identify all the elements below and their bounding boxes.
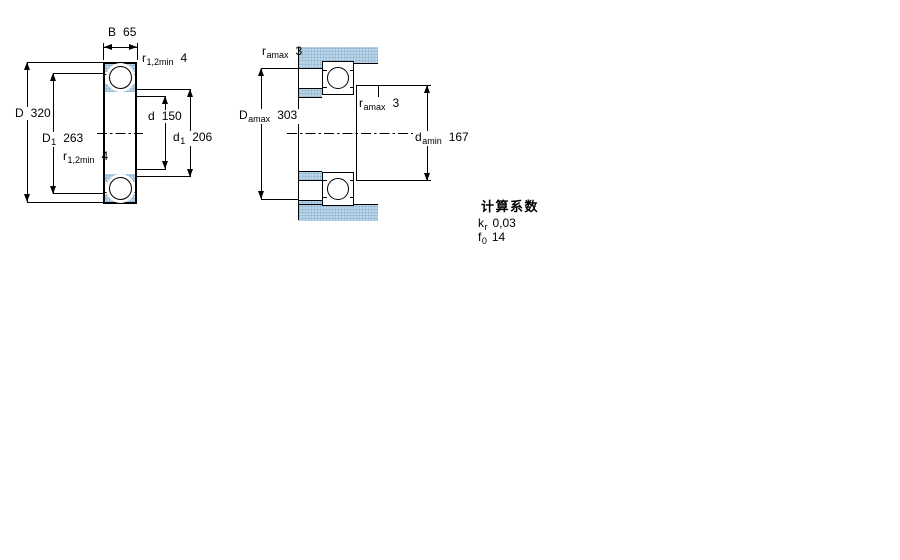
fig2-housing-shoulder-top	[298, 63, 322, 69]
calc-factor-f0: f014	[476, 231, 507, 246]
fig2-ring-face-tick	[323, 70, 327, 71]
arrowhead-up	[24, 62, 30, 70]
fig1-ring-face-tick	[105, 192, 109, 193]
dim-label-Damax: Damax303	[237, 109, 299, 124]
fig1-ring-face-tick	[131, 192, 135, 193]
arrowhead-down	[187, 169, 193, 177]
arrowhead-left	[104, 44, 112, 50]
calc-factors-title: 计算系数	[481, 196, 539, 215]
fig2-housing-bottom	[298, 204, 378, 221]
dim-label-r12min-top: r1,2min4	[140, 52, 189, 67]
fig2-ring-face-tick	[350, 70, 354, 71]
fig1-d1-extension-bottom	[137, 176, 191, 177]
dim-label-d1: d1206	[171, 131, 214, 146]
fig2-damin-extension-top	[356, 85, 431, 86]
fig2-Damax-dimension-line	[261, 68, 262, 200]
fig1-ring-face-tick	[131, 74, 135, 75]
fig1-ball-bottom	[109, 177, 132, 200]
dim-label-damin: damin167	[413, 131, 471, 146]
dim-label-D1: D1263	[40, 132, 85, 147]
fig1-ball-top	[109, 66, 132, 89]
fig1-d1-extension-top	[137, 89, 191, 90]
fig2-ring-face-tick	[350, 180, 354, 181]
dim-label-ramax-right: ramax3	[357, 97, 401, 112]
fig2-shaft-shoulder-bottom	[298, 171, 322, 181]
fig1-axis-line	[97, 133, 143, 134]
dim-label-B: B65	[106, 26, 138, 39]
arrowhead-right	[129, 44, 137, 50]
dim-label-r12min-bottom: r1,2min4	[61, 150, 110, 165]
fig2-ball-top	[327, 67, 349, 89]
fig2-shaft-shoulder-top	[298, 88, 322, 98]
fig2-bearing-bottom	[322, 172, 354, 206]
fig1-D1-extension-top	[53, 73, 103, 74]
fig2-ring-face-tick	[350, 87, 354, 88]
arrowhead-down	[50, 186, 56, 194]
fig1-D-extension-bottom	[27, 202, 103, 203]
arrowhead-down	[258, 191, 264, 199]
fig2-damin-extension-bottom	[356, 180, 431, 181]
fig2-bearing-top	[322, 61, 354, 95]
arrowhead-down	[24, 194, 30, 202]
arrowhead-up	[162, 96, 168, 104]
fig1-D-dimension-line	[27, 62, 28, 203]
fig1-D1-extension-bottom	[53, 193, 103, 194]
fig2-Damax-extension-bottom	[261, 199, 298, 200]
fig2-ball-bottom	[327, 178, 349, 200]
fig2-ring-face-tick	[323, 87, 327, 88]
arrowhead-up	[187, 89, 193, 97]
fig1-D-extension-top	[27, 62, 103, 63]
arrowhead-up	[50, 73, 56, 81]
dim-label-d: d150	[146, 110, 184, 123]
fig2-ring-face-tick	[323, 180, 327, 181]
fig2-Damax-extension-top	[261, 68, 298, 69]
arrowhead-down	[424, 173, 430, 181]
arrowhead-up	[424, 85, 430, 93]
fig2-ring-face-tick	[350, 197, 354, 198]
arrowhead-up	[258, 68, 264, 76]
dim-label-ramax-top: ramax3	[260, 45, 304, 60]
fig2-axis-line	[287, 133, 429, 134]
dim-label-D: D320	[13, 107, 53, 120]
arrowhead-down	[162, 161, 168, 169]
bearing-drawing-canvas: B65 r1,2min4 D320 D1263 r1,2min4 d150 d1…	[0, 0, 900, 560]
fig1-d-dimension-line	[165, 96, 166, 170]
fig2-housing-edge-tick	[378, 85, 379, 97]
fig2-ring-face-tick	[323, 197, 327, 198]
